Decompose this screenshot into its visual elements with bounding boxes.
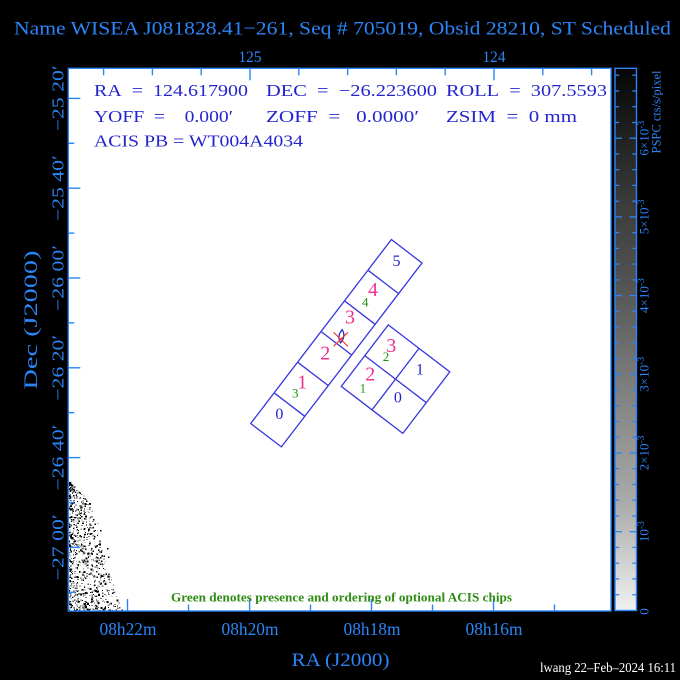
svg-text:−25 20′: −25 20′ (49, 65, 68, 131)
svg-text:125: 125 (239, 49, 262, 66)
svg-text:0: 0 (275, 406, 283, 423)
svg-text:RA (J2000): RA (J2000) (292, 650, 390, 671)
svg-text:−26 00′: −26 00′ (49, 245, 68, 311)
svg-text:0: 0 (637, 608, 652, 615)
svg-text:08h20m: 08h20m (222, 619, 279, 639)
svg-text:4: 4 (362, 294, 369, 309)
svg-text:ZSIM = 0 mm: ZSIM = 0 mm (446, 107, 577, 126)
svg-text:ZOFF = 0.0000′: ZOFF = 0.0000′ (266, 107, 419, 126)
svg-text:Green denotes presence and ord: Green denotes presence and ordering of o… (171, 590, 512, 605)
svg-text:08h22m: 08h22m (100, 619, 157, 639)
svg-text:YOFF = 0.000′: YOFF = 0.000′ (94, 107, 233, 126)
svg-text:0: 0 (394, 389, 402, 406)
svg-text:3: 3 (292, 386, 299, 401)
svg-text:08h16m: 08h16m (466, 619, 523, 639)
svg-text:2: 2 (320, 343, 330, 365)
svg-text:1: 1 (416, 362, 424, 379)
svg-text:Name WISEA J081828.41−261, Seq: Name WISEA J081828.41−261, Seq # 705019,… (14, 19, 672, 40)
svg-text:08h18m: 08h18m (344, 619, 401, 639)
svg-text:−27 00′: −27 00′ (49, 514, 68, 580)
svg-text:DEC = −26.223600: DEC = −26.223600 (266, 81, 437, 100)
svg-text:4: 4 (368, 279, 378, 301)
svg-text:lwang 22–Feb–2024 16:11: lwang 22–Feb–2024 16:11 (540, 660, 676, 675)
svg-text:−25 40′: −25 40′ (49, 155, 68, 221)
svg-text:1: 1 (297, 372, 307, 394)
svg-text:ROLL = 307.5593: ROLL = 307.5593 (446, 81, 607, 100)
svg-text:1: 1 (360, 380, 367, 395)
svg-text:−26 40′: −26 40′ (49, 425, 68, 491)
svg-text:124: 124 (483, 49, 506, 66)
svg-text:−26 20′: −26 20′ (49, 335, 68, 401)
svg-text:2: 2 (365, 364, 375, 386)
svg-text:RA = 124.617900: RA = 124.617900 (94, 81, 248, 100)
svg-text:5: 5 (393, 253, 401, 270)
svg-text:Dec (J2000): Dec (J2000) (21, 251, 42, 390)
svg-text:PSPC cts/s/pixel: PSPC cts/s/pixel (650, 70, 664, 154)
svg-text:ACIS PB = WT004A4034: ACIS PB = WT004A4034 (94, 132, 304, 151)
svg-text:2: 2 (383, 349, 390, 364)
svg-text:3: 3 (345, 307, 355, 329)
